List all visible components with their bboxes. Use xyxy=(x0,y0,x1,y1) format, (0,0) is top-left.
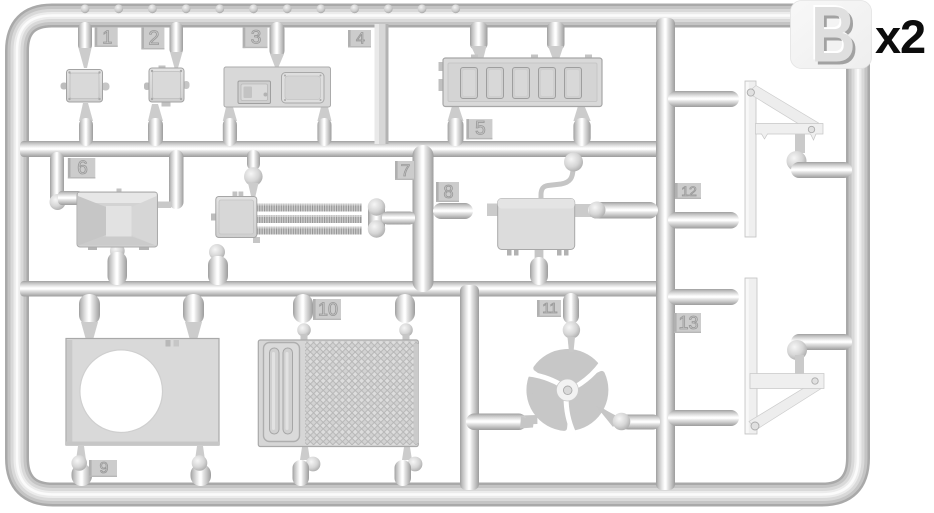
svg-text:7: 7 xyxy=(401,161,410,180)
svg-text:10: 10 xyxy=(318,300,338,320)
svg-text:B: B xyxy=(811,0,855,79)
svg-text:5: 5 xyxy=(475,119,486,140)
svg-text:3: 3 xyxy=(251,27,262,48)
svg-text:13: 13 xyxy=(678,313,698,333)
svg-text:8: 8 xyxy=(443,182,453,202)
svg-text:2: 2 xyxy=(148,28,159,50)
svg-text:6: 6 xyxy=(77,158,88,179)
svg-text:11: 11 xyxy=(542,300,558,317)
svg-text:1: 1 xyxy=(102,27,112,47)
svg-text:x2: x2 xyxy=(875,10,925,63)
svg-text:4: 4 xyxy=(356,30,365,47)
svg-text:12: 12 xyxy=(681,183,697,199)
svg-text:9: 9 xyxy=(100,460,109,477)
